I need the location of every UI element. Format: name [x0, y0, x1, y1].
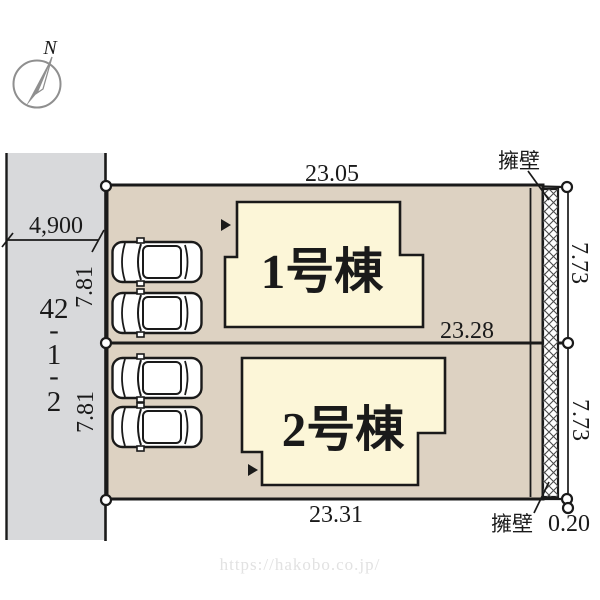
car-icon: [113, 289, 202, 337]
lot1-frontage-label: 7.81: [72, 266, 98, 308]
lot1-top-dimension: 23.05: [305, 161, 359, 187]
wall-thickness-dimension: 0.20: [548, 511, 590, 537]
building-2: 2号棟: [242, 358, 445, 485]
lot1-bottom-dimension: 23.28: [440, 318, 494, 344]
site-plan: N 4,900 42 - 1 - 2 7.81 7.81: [0, 0, 600, 600]
boundary-marker: [101, 495, 111, 505]
lot2-bottom-dimension: 23.31: [309, 502, 363, 528]
lot2-right-dimension: 7.73: [567, 399, 593, 441]
lot1-right-dimension: 7.73: [566, 242, 592, 284]
boundary-marker: [562, 182, 572, 192]
retaining-wall-label-top: 擁壁: [498, 149, 540, 173]
car-icon: [113, 354, 202, 402]
parcel-number-line3: 2: [47, 386, 62, 418]
site-plan-drawing: N 4,900 42 - 1 - 2 7.81 7.81: [0, 0, 600, 600]
retaining-wall-label-bottom: 擁壁: [491, 512, 533, 536]
boundary-marker: [563, 338, 573, 348]
car-icon: [113, 403, 202, 451]
building-1-label: 1号棟: [261, 244, 385, 299]
watermark-url: https://hakobo.co.jp/: [220, 555, 381, 574]
road-width-label: 4,900: [29, 213, 83, 239]
boundary-marker: [101, 338, 111, 348]
north-label: N: [42, 37, 58, 59]
car-icon: [113, 238, 202, 286]
road-area: 4,900 42 - 1 - 2 7.81 7.81: [2, 153, 106, 541]
building-2-label: 2号棟: [282, 402, 406, 457]
boundary-marker: [101, 181, 111, 191]
lot2-frontage-label: 7.81: [73, 391, 99, 433]
retaining-wall-strip: [543, 189, 558, 497]
north-compass: N: [14, 37, 61, 108]
building-1: 1号棟: [221, 202, 423, 327]
